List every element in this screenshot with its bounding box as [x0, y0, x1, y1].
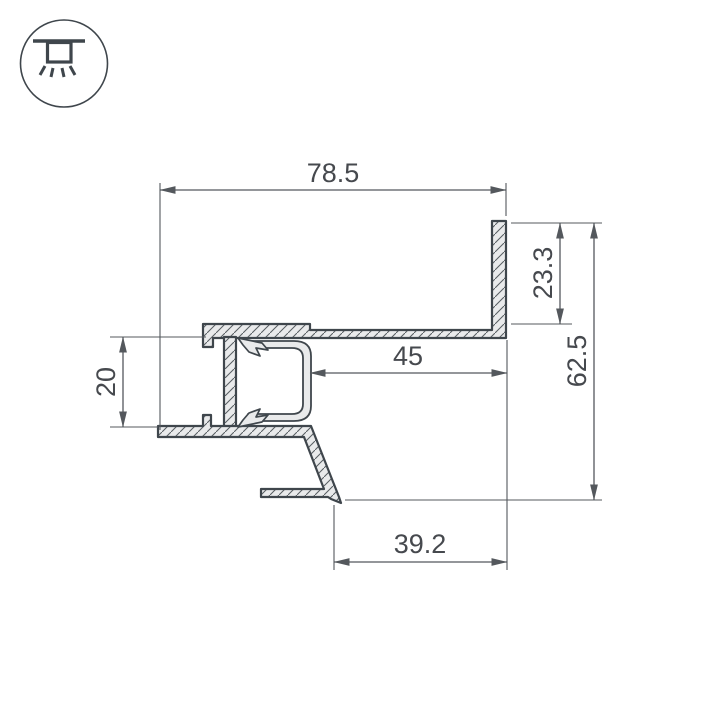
dim-bottom-width: 39.2: [334, 529, 507, 562]
dimensions: 78.5 23.3 62.5 45 20 39.2: [91, 158, 594, 562]
profile-clip-bottom: [238, 409, 268, 427]
dim-bottom-width-label: 39.2: [394, 529, 447, 559]
dim-overall-width: 78.5: [160, 158, 506, 190]
dim-opening-width: 45: [310, 341, 507, 373]
dim-overall-width-label: 78.5: [307, 158, 360, 188]
dim-overall-height: 62.5: [562, 223, 594, 500]
profile-aluminum-body: [158, 221, 506, 503]
extension-lines: [110, 183, 602, 570]
recessed-ceiling-light-icon: [21, 20, 108, 107]
profile-bottom-flange-and-leg: [158, 415, 341, 503]
profile-top-flange: [203, 221, 506, 347]
profile-dimension-drawing: 78.5 23.3 62.5 45 20 39.2: [0, 0, 720, 720]
dim-overall-height-label: 62.5: [562, 335, 592, 388]
dim-flange-height: 23.3: [528, 223, 560, 324]
profile-back-wall: [224, 337, 236, 428]
dim-opening-width-label: 45: [393, 341, 423, 371]
drawing-canvas: 78.5 23.3 62.5 45 20 39.2: [0, 0, 720, 720]
dim-mount-gap: 20: [91, 337, 123, 427]
dim-flange-height-label: 23.3: [528, 247, 558, 300]
dim-mount-gap-label: 20: [91, 367, 121, 397]
